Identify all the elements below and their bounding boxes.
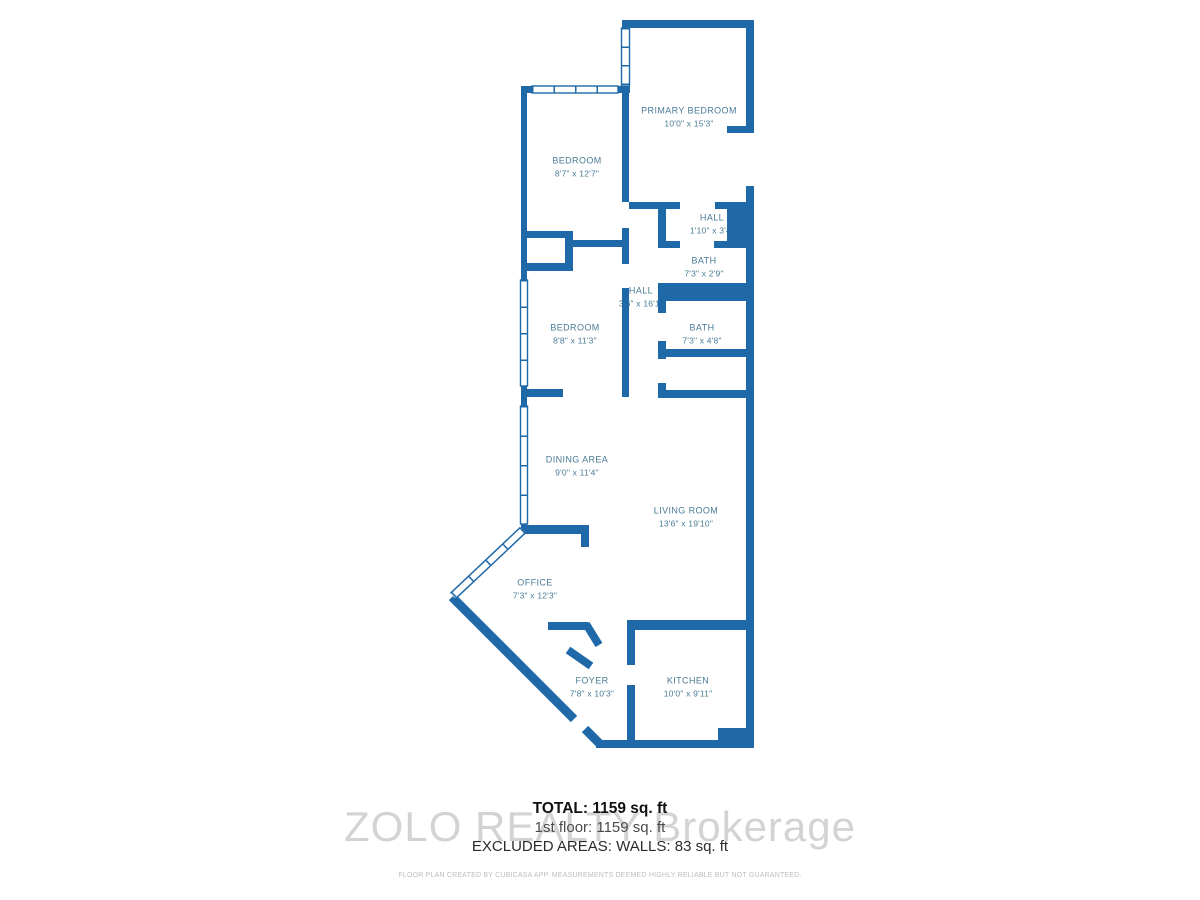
first-floor-area-text: 1st floor: 1159 sq. ft [0,818,1200,837]
footer: ZOLO REALTY Brokerage TOTAL: 1159 sq. ft… [0,0,1200,900]
excluded-area-text: EXCLUDED AREAS: WALLS: 83 sq. ft [0,837,1200,856]
disclaimer-text: FLOOR PLAN CREATED BY CUBICASA APP. MEAS… [0,872,1200,879]
total-area-text: TOTAL: 1159 sq. ft [0,799,1200,818]
area-summary: TOTAL: 1159 sq. ft 1st floor: 1159 sq. f… [0,799,1200,856]
